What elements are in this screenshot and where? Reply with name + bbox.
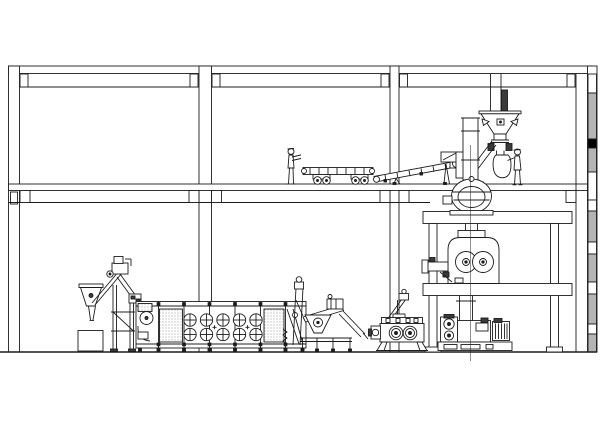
wall-black-marker <box>588 139 597 148</box>
vibrating-cooler <box>300 295 368 353</box>
right-wall-segment-strip <box>588 74 597 352</box>
belt-dryer <box>136 302 306 352</box>
elevation-drawing <box>0 0 600 421</box>
roof-beam <box>9 66 593 87</box>
second-floor-slab <box>9 184 588 203</box>
pellet-mill <box>438 315 512 351</box>
mill-inlet-dome <box>443 177 493 216</box>
plant-elevation-svg <box>0 0 600 421</box>
wheeled-belt-conveyor <box>302 168 375 185</box>
bagging-bag <box>493 151 511 178</box>
mill-discharge-duct <box>456 296 476 322</box>
column-left <box>9 66 20 352</box>
ground-box <box>78 331 103 352</box>
elevator-discharge-pipe <box>491 74 508 111</box>
worker-figure-left <box>286 149 301 185</box>
